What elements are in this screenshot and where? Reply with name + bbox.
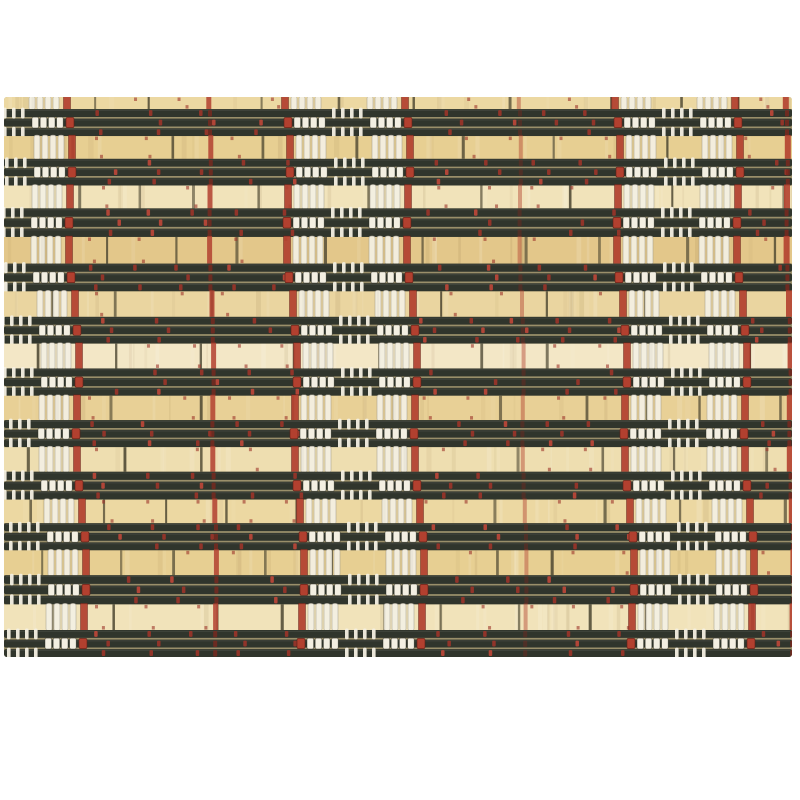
red-weft-dash bbox=[766, 105, 769, 109]
slat-sheen bbox=[6, 543, 790, 544]
red-warp-bead bbox=[750, 584, 758, 595]
slat-band bbox=[0, 574, 795, 606]
weave-tick bbox=[19, 594, 23, 606]
red-warp-cross bbox=[524, 534, 528, 540]
bamboo-grain bbox=[678, 550, 681, 575]
red-weft-dash bbox=[568, 98, 571, 102]
weave-tick bbox=[350, 470, 354, 481]
weave-bead bbox=[402, 584, 409, 596]
red-stitch bbox=[204, 220, 208, 226]
red-weft-dash bbox=[589, 468, 592, 472]
weave-tick bbox=[682, 176, 686, 187]
red-warp-cross bbox=[786, 179, 790, 185]
red-stitch bbox=[234, 631, 238, 637]
warp-thread-white bbox=[656, 549, 662, 576]
weave-tick bbox=[18, 419, 22, 430]
weave-bead bbox=[379, 272, 386, 283]
bamboo-grain bbox=[653, 97, 656, 109]
weave-bead bbox=[303, 377, 310, 388]
weave-bead bbox=[651, 167, 658, 178]
red-warp-bead bbox=[286, 167, 294, 177]
red-stitch bbox=[293, 473, 297, 479]
red-warp-bead bbox=[420, 584, 428, 595]
weave-tick bbox=[698, 386, 702, 397]
weave-bead bbox=[300, 428, 307, 439]
red-warp-cross bbox=[521, 318, 525, 324]
warp-thread-white bbox=[631, 236, 637, 265]
warp-thread-white bbox=[63, 395, 69, 421]
warp-thread-white bbox=[648, 184, 654, 209]
weave-bead bbox=[713, 638, 720, 649]
weave-bead bbox=[386, 117, 393, 128]
warp-thread-red bbox=[524, 549, 528, 576]
warp-thread-white bbox=[70, 603, 76, 631]
warp-thread-white bbox=[712, 499, 718, 525]
warp-thread-white bbox=[621, 96, 627, 110]
warp-thread-white bbox=[370, 184, 376, 209]
weave-bead bbox=[630, 428, 637, 439]
bamboo-grain bbox=[62, 185, 65, 208]
red-stitch bbox=[94, 631, 98, 637]
weave-bead bbox=[378, 117, 385, 128]
red-warp-cross bbox=[214, 587, 218, 594]
weave-tick bbox=[13, 282, 17, 293]
red-stitch bbox=[243, 641, 247, 647]
bamboo-strip bbox=[0, 395, 793, 421]
red-stitch bbox=[148, 440, 152, 446]
weave-tick bbox=[12, 367, 16, 378]
weave-tick bbox=[670, 207, 674, 218]
warp-thread-white bbox=[647, 446, 653, 473]
weave-tick bbox=[18, 522, 22, 533]
red-stitch bbox=[455, 576, 459, 583]
weave-bead bbox=[370, 117, 377, 128]
warp-thread-white bbox=[62, 603, 68, 631]
red-weft-dash bbox=[488, 626, 491, 630]
red-warp-cross bbox=[208, 209, 212, 216]
red-weft-dash bbox=[562, 416, 565, 420]
warp-thread-white bbox=[637, 96, 643, 110]
red-weft-dash bbox=[226, 313, 229, 317]
bamboo-grain bbox=[510, 185, 513, 208]
red-stitch bbox=[283, 587, 287, 594]
weave-bead bbox=[642, 167, 649, 178]
red-warp-cross bbox=[788, 318, 792, 324]
red-weft-dash bbox=[198, 364, 201, 368]
weave-tick bbox=[341, 386, 345, 397]
red-stitch bbox=[441, 650, 445, 656]
red-weft-dash bbox=[473, 155, 476, 159]
weave-tick bbox=[4, 262, 8, 273]
weave-tick bbox=[363, 648, 367, 659]
warp-thread-red bbox=[614, 236, 621, 265]
red-warp-bead bbox=[747, 638, 755, 648]
red-stitch bbox=[569, 650, 573, 656]
bamboo-segment-line bbox=[338, 97, 341, 109]
red-weft-dash bbox=[570, 186, 573, 190]
red-warp-cross bbox=[210, 440, 214, 446]
weave-bead bbox=[302, 117, 309, 128]
warp-thread-white bbox=[45, 96, 51, 110]
red-weft-dash bbox=[611, 500, 614, 504]
weave-bead bbox=[56, 217, 63, 228]
red-weft-dash bbox=[559, 137, 562, 141]
weave-bead bbox=[734, 480, 741, 491]
weave-tick bbox=[334, 157, 338, 168]
weave-bead bbox=[702, 167, 709, 178]
warp-thread-white bbox=[68, 499, 74, 525]
red-weft-dash bbox=[465, 500, 468, 504]
warp-thread-white bbox=[317, 395, 323, 421]
red-stitch bbox=[191, 473, 195, 479]
warp-thread-white bbox=[369, 236, 375, 265]
weave-tick bbox=[360, 262, 364, 273]
red-weft-dash bbox=[234, 237, 237, 241]
red-stitch bbox=[155, 543, 159, 549]
weave-bead bbox=[725, 480, 732, 491]
warp-thread-red bbox=[518, 184, 522, 209]
warp-thread-red bbox=[524, 603, 528, 631]
warp-thread-white bbox=[393, 395, 399, 421]
weave-tick bbox=[341, 470, 345, 481]
warp-thread-red bbox=[402, 96, 409, 110]
red-weft-dash bbox=[437, 186, 440, 190]
warp-thread-red bbox=[76, 343, 83, 370]
bamboo-segment-line bbox=[257, 185, 260, 208]
red-stitch bbox=[167, 327, 171, 333]
bamboo-grain bbox=[587, 237, 590, 264]
red-warp-bead bbox=[293, 480, 301, 491]
red-stitch bbox=[106, 337, 110, 343]
warp-thread-red bbox=[419, 603, 426, 631]
weave-bead bbox=[332, 638, 339, 649]
bamboo-grain bbox=[207, 396, 210, 420]
warp-thread-red bbox=[629, 603, 636, 631]
weave-bead bbox=[649, 117, 656, 128]
warp-thread-white bbox=[702, 135, 708, 160]
bamboo-segment-line bbox=[175, 237, 177, 264]
red-warp-bead bbox=[66, 117, 74, 127]
red-weft-dash bbox=[147, 344, 150, 348]
red-warp-cross bbox=[208, 120, 212, 126]
bamboo-segment-line bbox=[493, 500, 496, 524]
red-weft-dash bbox=[748, 155, 751, 159]
weave-bead bbox=[665, 584, 672, 596]
bamboo-grain bbox=[87, 291, 89, 317]
weave-tick bbox=[695, 541, 699, 552]
weave-tick bbox=[332, 127, 336, 138]
red-stitch bbox=[479, 492, 483, 498]
weave-tick bbox=[671, 367, 675, 378]
warp-thread-white bbox=[653, 290, 659, 318]
weave-tick bbox=[341, 127, 345, 138]
weave-bead bbox=[639, 217, 646, 228]
bamboo-grain bbox=[563, 291, 567, 317]
bamboo-grain bbox=[426, 237, 430, 264]
red-warp-bead bbox=[735, 272, 743, 283]
warp-thread-red bbox=[620, 290, 627, 318]
red-weft-dash bbox=[204, 626, 207, 630]
red-stitch bbox=[575, 483, 579, 489]
red-weft-dash bbox=[228, 396, 231, 400]
warp-thread-white bbox=[394, 549, 400, 576]
warp-thread-white bbox=[705, 96, 711, 110]
warp-thread-red bbox=[742, 446, 749, 473]
weave-bead bbox=[371, 272, 378, 283]
warp-thread-white bbox=[644, 499, 650, 525]
warp-thread-white bbox=[322, 499, 328, 525]
red-stitch bbox=[199, 110, 203, 116]
bamboo-grain bbox=[158, 550, 163, 575]
bamboo-segment-line bbox=[499, 396, 502, 420]
weave-tick bbox=[669, 315, 673, 326]
red-warp-bead bbox=[293, 377, 301, 387]
red-warp-bead bbox=[741, 325, 749, 335]
warp-thread-white bbox=[392, 603, 398, 631]
weave-tick bbox=[27, 541, 31, 552]
red-stitch bbox=[549, 440, 553, 446]
weave-bead bbox=[323, 638, 330, 649]
red-warp-cross bbox=[211, 327, 215, 333]
red-stitch bbox=[270, 576, 274, 583]
red-stitch bbox=[182, 587, 186, 594]
weave-tick bbox=[36, 541, 40, 552]
bamboo-grain bbox=[510, 344, 514, 369]
red-warp-bead bbox=[734, 117, 742, 127]
red-stitch bbox=[470, 318, 474, 324]
weave-tick bbox=[680, 386, 684, 397]
warp-thread-white bbox=[72, 549, 78, 576]
bamboo-grain bbox=[296, 550, 300, 575]
warp-thread-red bbox=[67, 184, 74, 209]
weave-tick bbox=[11, 207, 15, 218]
weave-bead bbox=[633, 377, 640, 388]
weave-bead bbox=[388, 167, 395, 178]
weave-tick bbox=[9, 541, 13, 552]
red-stitch bbox=[89, 265, 93, 271]
warp-thread-white bbox=[54, 603, 60, 631]
weave-tick bbox=[678, 315, 682, 326]
red-warp-bead bbox=[413, 377, 421, 387]
red-stitch bbox=[141, 421, 145, 427]
red-weft-dash bbox=[599, 292, 602, 296]
weave-tick bbox=[340, 227, 344, 238]
weave-tick bbox=[684, 648, 688, 659]
weave-tick bbox=[340, 207, 344, 218]
red-stitch bbox=[445, 110, 449, 116]
red-stitch bbox=[200, 369, 204, 375]
weave-bead bbox=[47, 217, 54, 228]
red-stitch bbox=[436, 543, 440, 549]
bamboo-grain bbox=[169, 396, 171, 420]
red-warp-bead bbox=[82, 584, 90, 595]
bamboo-grain bbox=[562, 550, 564, 575]
warp-thread-white bbox=[301, 395, 307, 421]
red-weft-dash bbox=[626, 571, 629, 575]
red-warp-cross bbox=[521, 327, 525, 333]
red-weft-dash bbox=[762, 551, 765, 555]
bamboo-grain bbox=[278, 136, 283, 159]
slat-sheen bbox=[6, 524, 790, 525]
red-stitch bbox=[770, 110, 774, 116]
red-weft-dash bbox=[492, 260, 495, 264]
warp-thread-white bbox=[652, 499, 658, 525]
weave-tick bbox=[21, 490, 25, 501]
red-stitch bbox=[149, 110, 153, 116]
red-warp-cross bbox=[520, 421, 524, 427]
warp-thread-white bbox=[41, 343, 47, 370]
red-stitch bbox=[575, 641, 579, 647]
warp-thread-white bbox=[640, 184, 646, 209]
weave-tick bbox=[372, 648, 376, 659]
red-stitch bbox=[547, 169, 551, 175]
warp-thread-red bbox=[292, 446, 299, 473]
red-stitch bbox=[470, 587, 474, 594]
red-stitch bbox=[506, 576, 510, 583]
red-stitch bbox=[760, 327, 764, 333]
bamboo-grain bbox=[244, 185, 247, 208]
warp-thread-white bbox=[32, 184, 38, 209]
warp-thread-white bbox=[390, 499, 396, 525]
red-warp-cross bbox=[785, 110, 789, 116]
red-stitch bbox=[445, 169, 449, 175]
weave-bead bbox=[63, 428, 70, 439]
bamboo-segment-line bbox=[525, 237, 528, 264]
red-stitch bbox=[436, 631, 440, 637]
warp-thread-white bbox=[647, 236, 653, 265]
red-stitch bbox=[531, 160, 535, 166]
red-stitch bbox=[227, 265, 231, 271]
bamboo-grain bbox=[495, 291, 498, 317]
warp-thread-red bbox=[287, 135, 294, 160]
weave-bead bbox=[45, 638, 52, 649]
warp-thread-white bbox=[660, 499, 666, 525]
weave-tick bbox=[357, 315, 361, 326]
slat-sheen bbox=[6, 576, 790, 577]
weave-tick bbox=[359, 470, 363, 481]
weave-bead bbox=[649, 377, 656, 388]
warp-thread-white bbox=[53, 96, 59, 110]
warp-thread-red bbox=[290, 290, 297, 318]
weave-tick bbox=[12, 490, 16, 501]
weave-tick bbox=[342, 282, 346, 293]
weave-tick bbox=[7, 629, 11, 640]
weave-tick bbox=[689, 367, 693, 378]
red-warp-cross bbox=[518, 230, 522, 237]
warp-thread-white bbox=[736, 499, 742, 525]
weave-bead bbox=[55, 531, 62, 542]
red-warp-bead bbox=[733, 217, 741, 228]
warp-thread-white bbox=[640, 549, 646, 576]
red-stitch bbox=[476, 473, 480, 479]
warp-thread-white bbox=[312, 135, 318, 160]
red-warp-bead bbox=[406, 167, 414, 177]
red-stitch bbox=[189, 631, 193, 637]
warp-thread-white bbox=[307, 290, 313, 318]
red-warp-cross bbox=[214, 576, 218, 583]
red-warp-cross bbox=[789, 389, 793, 395]
weave-bead bbox=[301, 325, 308, 336]
red-weft-dash bbox=[280, 344, 283, 348]
red-stitch bbox=[290, 369, 294, 375]
weave-bead bbox=[66, 480, 73, 491]
warp-thread-red bbox=[751, 549, 758, 576]
red-weft-dash bbox=[245, 364, 248, 368]
red-stitch bbox=[767, 440, 771, 446]
weave-tick bbox=[9, 419, 13, 430]
red-stitch bbox=[151, 230, 155, 236]
weave-bead bbox=[308, 428, 315, 439]
warp-thread-white bbox=[48, 549, 54, 576]
red-weft-dash bbox=[442, 448, 445, 452]
red-stitch bbox=[162, 534, 166, 540]
weave-bead bbox=[66, 377, 73, 388]
red-stitch bbox=[419, 318, 423, 324]
red-warp-bead bbox=[417, 638, 425, 648]
warp-thread-white bbox=[299, 96, 305, 110]
weave-tick bbox=[693, 648, 697, 659]
bamboo-grain bbox=[444, 291, 448, 317]
red-weft-dash bbox=[469, 551, 472, 555]
weave-bead bbox=[722, 428, 729, 439]
red-weft-dash bbox=[454, 313, 457, 317]
weave-tick bbox=[677, 438, 681, 449]
weave-bead bbox=[385, 217, 392, 228]
red-stitch bbox=[575, 534, 579, 540]
red-weft-dash bbox=[95, 605, 98, 609]
warp-thread-white bbox=[394, 184, 400, 209]
red-warp-cross bbox=[214, 524, 218, 530]
bamboo-segment-line bbox=[37, 344, 40, 369]
red-stitch bbox=[283, 209, 287, 215]
red-warp-bead bbox=[403, 217, 411, 228]
red-weft-dash bbox=[744, 137, 747, 141]
red-stitch bbox=[573, 543, 577, 549]
weave-bead bbox=[701, 272, 708, 283]
warp-thread-red bbox=[410, 290, 417, 318]
weave-tick bbox=[686, 541, 690, 552]
red-weft-dash bbox=[509, 137, 512, 141]
bamboo-strip bbox=[0, 343, 794, 370]
red-stitch bbox=[248, 431, 252, 437]
bamboo-segment-line bbox=[698, 396, 700, 420]
red-stitch bbox=[251, 389, 255, 395]
bamboo-grain bbox=[226, 447, 231, 472]
weave-tick bbox=[13, 262, 17, 273]
weave-bead bbox=[39, 325, 46, 336]
warp-thread-white bbox=[722, 603, 728, 631]
red-warp-cross bbox=[214, 534, 218, 540]
weave-bead bbox=[645, 638, 652, 649]
warp-thread-red bbox=[299, 603, 306, 631]
bamboo-grain bbox=[684, 447, 688, 472]
bamboo-grain bbox=[246, 396, 250, 420]
red-stitch bbox=[196, 440, 200, 446]
red-warp-bead bbox=[616, 167, 624, 177]
bamboo-grain bbox=[745, 604, 747, 630]
red-stitch bbox=[93, 473, 97, 479]
warp-thread-white bbox=[730, 603, 736, 631]
warp-thread-white bbox=[645, 290, 651, 318]
red-weft-dash bbox=[286, 364, 289, 368]
red-warp-cross bbox=[523, 641, 527, 647]
bamboo-grain bbox=[335, 291, 340, 317]
weave-tick bbox=[356, 522, 360, 533]
warp-thread-red bbox=[784, 236, 790, 265]
bamboo-segment-line bbox=[598, 237, 601, 264]
red-stitch bbox=[117, 220, 121, 226]
red-weft-dash bbox=[221, 292, 224, 296]
